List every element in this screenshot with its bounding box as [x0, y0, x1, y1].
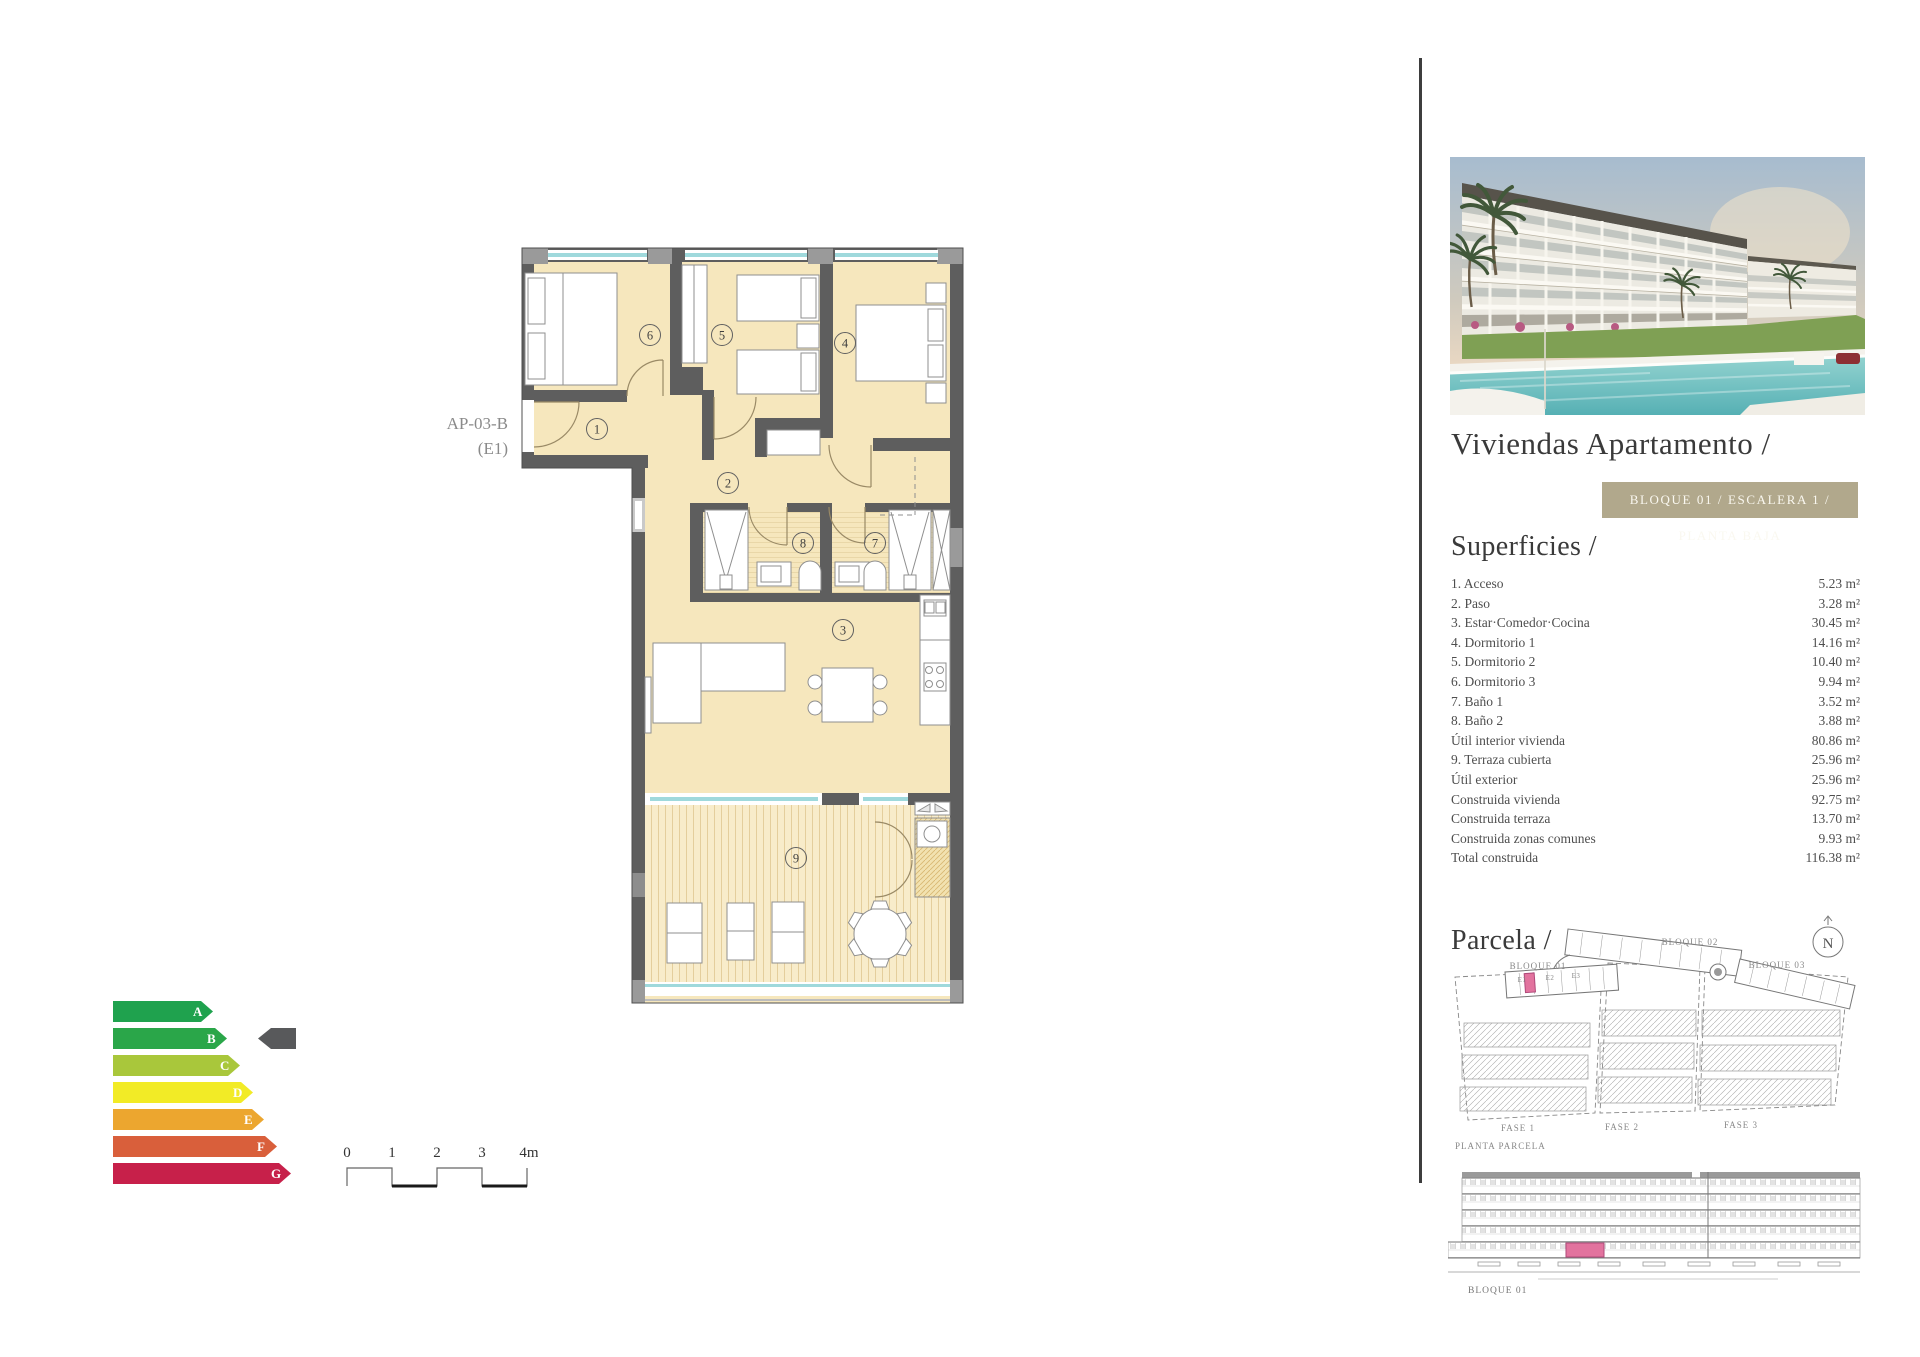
surface-value: 25.96 m²	[1812, 752, 1860, 772]
scale-label-2: 2	[433, 1145, 441, 1161]
planta-parcela-label: PLANTA PARCELA	[1455, 1141, 1546, 1151]
energy-letter-e: E	[244, 1112, 253, 1127]
superficies-list: 1. Acceso5.23 m²2. Paso3.28 m²3. Estar·C…	[1451, 576, 1860, 870]
energy-bar-g	[113, 1163, 291, 1184]
entry-door-gap	[522, 400, 534, 452]
surface-label: 4. Dormitorio 1	[1451, 635, 1535, 655]
room-number-2: 2	[725, 477, 731, 491]
room-number-1: 1	[594, 423, 600, 437]
page-title: Viviendas Apartamento /	[1451, 426, 1771, 462]
floor-plan: 1 2 3 4 5 6 7 8 9	[515, 245, 985, 1020]
energy-letter-g: G	[271, 1166, 281, 1181]
surface-label: Construida terraza	[1451, 811, 1550, 831]
surface-value: 80.86 m²	[1812, 733, 1860, 753]
surface-row: 9. Terraza cubierta25.96 m²	[1451, 752, 1860, 772]
escalera-2-label: E2	[1546, 974, 1555, 982]
facade-ground	[1448, 1242, 1860, 1258]
far-building	[1748, 256, 1856, 318]
surface-label: Útil interior vivienda	[1451, 733, 1565, 753]
unit-variant: (E1)	[400, 437, 508, 462]
car	[1836, 353, 1860, 364]
surface-row: 2. Paso3.28 m²	[1451, 596, 1860, 616]
energy-bar-e	[113, 1109, 264, 1130]
surface-label: 8. Baño 2	[1451, 713, 1503, 733]
surface-value: 13.70 m²	[1812, 811, 1860, 831]
roof-parapet	[1462, 1172, 1692, 1178]
elevation-drawing: BLOQUE 01	[1448, 1162, 1863, 1297]
surface-value: 9.93 m²	[1818, 831, 1860, 851]
surface-value: 3.88 m²	[1818, 713, 1860, 733]
scale-label-0: 0	[343, 1145, 351, 1161]
room-number-6: 6	[647, 329, 653, 343]
scale-label-3: 3	[478, 1145, 486, 1161]
surface-row: Útil interior vivienda80.86 m²	[1451, 733, 1860, 753]
energy-letter-b: B	[207, 1031, 216, 1046]
escalera-1-label: E1	[1518, 976, 1527, 984]
surface-label: 1. Acceso	[1451, 576, 1503, 596]
brochure-page: AP-03-B (E1)	[0, 0, 1920, 1357]
surface-row: Construida terraza13.70 m²	[1451, 811, 1860, 831]
fase-2-label: FASE 2	[1605, 1122, 1639, 1132]
surface-value: 92.75 m²	[1812, 792, 1860, 812]
bloque-02-label: BLOQUE 02	[1662, 937, 1719, 947]
bloque-03-label: BLOQUE 03	[1749, 960, 1806, 970]
unit-code: AP-03-B	[400, 412, 508, 437]
energy-letter-c: C	[220, 1058, 229, 1073]
energy-letter-d: D	[233, 1085, 242, 1100]
surface-row: 3. Estar·Comedor·Cocina30.45 m²	[1451, 615, 1860, 635]
surface-row: 5. Dormitorio 210.40 m²	[1451, 654, 1860, 674]
room-number-8: 8	[800, 537, 806, 551]
roundabout	[1710, 964, 1726, 980]
planter	[1794, 353, 1824, 365]
surface-label: 2. Paso	[1451, 596, 1490, 616]
surface-row: 7. Baño 13.52 m²	[1451, 694, 1860, 714]
surface-label: 5. Dormitorio 2	[1451, 654, 1535, 674]
room-number-9: 9	[793, 852, 799, 866]
surface-row: Total construida116.38 m²	[1451, 850, 1860, 870]
surface-row: 6. Dormitorio 39.94 m²	[1451, 674, 1860, 694]
room-number-7: 7	[872, 537, 878, 551]
energy-bar-f	[113, 1136, 277, 1157]
surface-label: 7. Baño 1	[1451, 694, 1503, 714]
surface-row: 1. Acceso5.23 m²	[1451, 576, 1860, 596]
room-number-3: 3	[840, 624, 846, 638]
surface-row: Construida zonas comunes9.93 m²	[1451, 831, 1860, 851]
surface-value: 9.94 m²	[1818, 674, 1860, 694]
parking-rows	[1460, 1010, 1840, 1111]
site-plan: N	[1450, 915, 1865, 1160]
surface-value: 3.52 m²	[1818, 694, 1860, 714]
scale-label-4: 4m	[519, 1145, 538, 1161]
surface-value: 116.38 m²	[1805, 850, 1860, 870]
surface-row: 4. Dormitorio 114.16 m²	[1451, 635, 1860, 655]
fase-3-label: FASE 3	[1724, 1120, 1758, 1130]
superficies-heading: Superficies /	[1451, 531, 1597, 563]
scale-bar: 0 1 2 3 4m	[338, 1142, 538, 1197]
scale-line	[347, 1168, 527, 1186]
unit-label: AP-03-B (E1)	[400, 412, 508, 461]
north-label: N	[1823, 936, 1834, 952]
energy-rating-chart: A B C D E F G	[108, 995, 308, 1190]
surface-row: 8. Baño 23.88 m²	[1451, 713, 1860, 733]
bloque-01-label: BLOQUE 01	[1510, 961, 1567, 971]
scale-label-1: 1	[388, 1145, 396, 1161]
surface-value: 30.45 m²	[1812, 615, 1860, 635]
elevation-label: BLOQUE 01	[1468, 1286, 1527, 1296]
surface-label: Construida vivienda	[1451, 792, 1560, 812]
energy-letter-a: A	[193, 1004, 203, 1019]
highlighted-unit-elevation	[1566, 1243, 1604, 1257]
energy-bar-d	[113, 1082, 253, 1103]
escalera-3-label: E3	[1572, 972, 1581, 980]
energy-letter-f: F	[257, 1139, 265, 1154]
building-photo	[1450, 157, 1865, 415]
room-number-4: 4	[842, 337, 849, 351]
surface-value: 5.23 m²	[1818, 576, 1860, 596]
surface-label: Total construida	[1451, 850, 1538, 870]
surface-value: 10.40 m²	[1812, 654, 1860, 674]
north-arrow-icon: N	[1813, 916, 1843, 957]
surface-value: 3.28 m²	[1818, 596, 1860, 616]
surface-value: 14.16 m²	[1812, 635, 1860, 655]
surface-label: 9. Terraza cubierta	[1451, 752, 1551, 772]
energy-rating-pointer-icon	[258, 1028, 296, 1049]
surface-label: 6. Dormitorio 3	[1451, 674, 1535, 694]
room-number-5: 5	[719, 329, 725, 343]
surface-row: Útil exterior25.96 m²	[1451, 772, 1860, 792]
surface-label: Construida zonas comunes	[1451, 831, 1596, 851]
surface-row: Construida vivienda92.75 m²	[1451, 792, 1860, 812]
fase-1-label: FASE 1	[1501, 1123, 1535, 1133]
vertical-divider	[1419, 58, 1422, 1183]
location-badge: BLOQUE 01 / ESCALERA 1 / PLANTA BAJA	[1602, 482, 1858, 518]
surface-label: 3. Estar·Comedor·Cocina	[1451, 615, 1590, 635]
plinths	[1478, 1262, 1840, 1266]
surface-label: Útil exterior	[1451, 772, 1517, 792]
surface-value: 25.96 m²	[1812, 772, 1860, 792]
